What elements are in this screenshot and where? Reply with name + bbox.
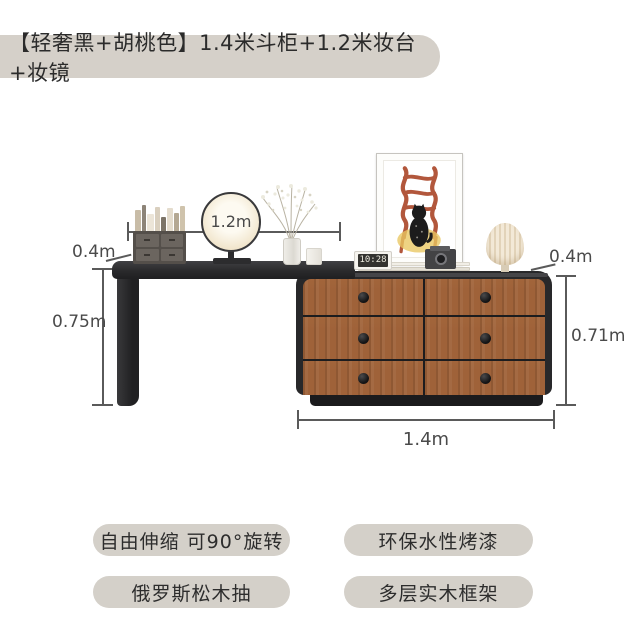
drawer-grid: [303, 279, 545, 395]
bottle: [180, 206, 185, 232]
dimension-tick: [556, 404, 576, 406]
makeup-organizer: [133, 231, 186, 264]
bottle: [161, 217, 167, 232]
dimension-tick: [339, 222, 341, 241]
candle-cup: [306, 248, 322, 265]
flower-vase: [283, 238, 301, 265]
drawer: [425, 361, 545, 395]
drawer-knob: [480, 373, 491, 384]
feature-badge-paint: 环保水性烤漆: [344, 524, 533, 556]
table-lamp: [486, 223, 524, 265]
mirror-base: [213, 258, 251, 264]
dimension-pointer: [531, 263, 556, 271]
title-badge: 【轻奢黑+胡桃色】1.4米斗柜+1.2米妆台+妆镜: [0, 35, 440, 78]
drawer: [425, 317, 545, 359]
dimension-label-dresser-width: 1.4m: [297, 429, 555, 450]
camera-lens: [435, 253, 447, 265]
dresser-cabinet: [296, 271, 552, 395]
feature-label: 自由伸缩 可90°旋转: [100, 527, 284, 554]
bottle: [174, 213, 180, 232]
dresser-plinth: [310, 395, 543, 406]
dimension-label-vanity-height: 0.75m: [52, 312, 106, 332]
dimension-tick: [553, 410, 555, 429]
dimension-tick: [92, 404, 113, 406]
dried-flowers: [255, 182, 321, 246]
bottle: [167, 208, 173, 232]
product-detail-image: 【轻奢黑+胡桃色】1.4米斗柜+1.2米妆台+妆镜 0.4m 0.75m 0.4…: [0, 0, 640, 640]
frame-mat: [383, 160, 456, 258]
drawer: [303, 361, 423, 395]
feature-label: 俄罗斯松木抽: [131, 579, 251, 606]
dimension-label-dresser-height: 0.71m: [571, 326, 625, 346]
camera-top: [430, 246, 450, 251]
feature-badge-wood-frame: 多层实木框架: [344, 576, 533, 608]
drawer-knob: [358, 333, 369, 344]
feature-label: 多层实木框架: [378, 579, 498, 606]
vanity-desk-leg: [117, 278, 139, 406]
drawer: [425, 279, 545, 315]
title-text: 【轻奢黑+胡桃色】1.4米斗柜+1.2米妆台+妆镜: [9, 27, 440, 87]
dimension-tick: [127, 222, 129, 241]
clock-time: 10:28: [358, 254, 388, 267]
bottle: [142, 205, 147, 232]
drawer: [303, 279, 423, 315]
feature-label: 环保水性烤漆: [378, 527, 498, 554]
dimension-label-vanity-width: 1.2m: [201, 212, 261, 231]
drawer: [303, 317, 423, 359]
drawer-knob: [358, 292, 369, 303]
bottle: [147, 214, 154, 232]
cosmetic-bottles: [135, 203, 185, 232]
dimension-label-dresser-depth: 0.4m: [549, 247, 593, 267]
dimension-line-dresser-height: [565, 276, 567, 405]
drawer-knob: [480, 333, 491, 344]
dimension-line-vanity-height: [102, 269, 104, 405]
drawer-knob: [358, 373, 369, 384]
chair-cat-artwork: [384, 161, 455, 257]
dimension-tick: [297, 410, 299, 429]
dimension-line-dresser-width: [297, 419, 555, 421]
dimension-tick: [556, 275, 576, 277]
vintage-camera: [425, 249, 456, 269]
organizer-drawer: [136, 249, 159, 262]
organizer-drawer: [161, 249, 184, 262]
organizer-drawer: [136, 234, 159, 247]
bottle: [155, 207, 160, 232]
feature-badge-pine-drawer: 俄罗斯松木抽: [93, 576, 290, 608]
feature-badge-rotate: 自由伸缩 可90°旋转: [93, 524, 290, 556]
drawer-knob: [480, 292, 491, 303]
flip-clock: 10:28: [354, 251, 392, 270]
organizer-drawer: [161, 234, 184, 247]
dimension-tick: [92, 268, 113, 270]
bottle: [135, 210, 141, 232]
